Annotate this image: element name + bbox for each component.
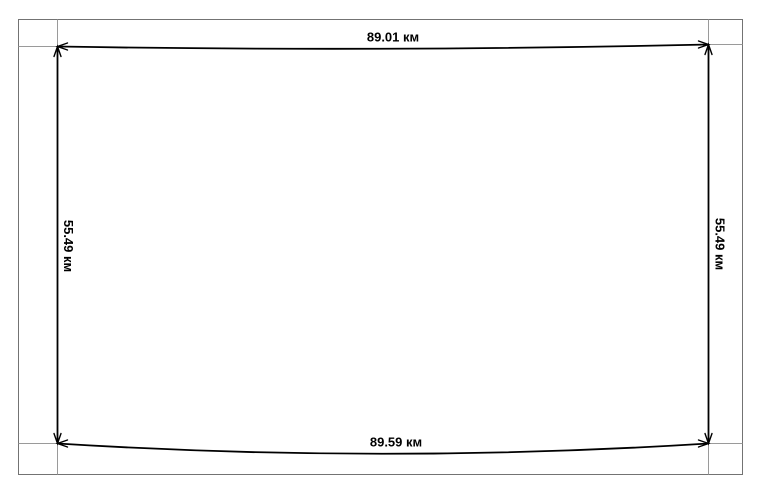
dimension-label-left: 55.49 км xyxy=(61,220,76,272)
region-dimensions-canvas: 89.01 км 89.59 км 55.49 км 55.49 км xyxy=(0,0,761,493)
dimension-drawing: 89.01 км 89.59 км 55.49 км 55.49 км xyxy=(0,0,761,493)
dimension-label-bottom: 89.59 км xyxy=(370,435,422,450)
dimension-label-right: 55.49 км xyxy=(713,218,728,270)
dimension-label-top: 89.01 км xyxy=(367,30,419,45)
canvas-background xyxy=(0,0,761,493)
